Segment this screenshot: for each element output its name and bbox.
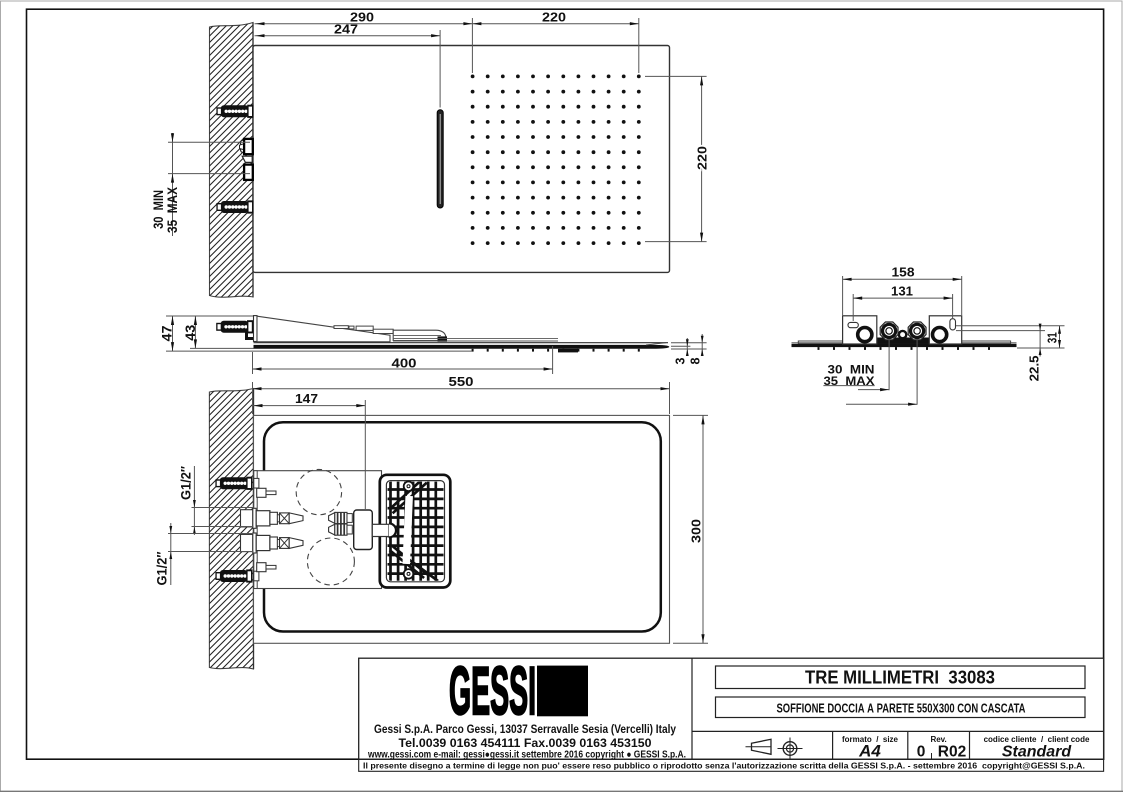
svg-text:300: 300	[689, 519, 704, 543]
svg-text:550: 550	[449, 374, 474, 389]
svg-text:220: 220	[542, 10, 566, 25]
svg-text:220: 220	[694, 146, 709, 170]
svg-text:Gessi S.p.A. Parco Gessi, 1303: Gessi S.p.A. Parco Gessi, 13037 Serraval…	[374, 722, 676, 736]
svg-text:Tel.0039 0163 454111 Fax.0039: Tel.0039 0163 454111 Fax.0039 0163 45315…	[399, 736, 652, 750]
svg-text:TRE MILLIMETRI 33083: TRE MILLIMETRI 33083	[805, 667, 995, 688]
svg-text:35 MAX: 35 MAX	[165, 187, 180, 233]
svg-text:GESSI: GESSI	[449, 653, 536, 729]
svg-text:G1/2″: G1/2″	[179, 465, 194, 500]
svg-text:R02: R02	[938, 744, 966, 761]
svg-text:Il presente disegno a termine: Il presente disegno a termine di legge n…	[363, 762, 1085, 771]
svg-text:22.5: 22.5	[1027, 355, 1042, 381]
svg-text:30 MIN: 30 MIN	[828, 364, 875, 376]
svg-text:G1/2″: G1/2″	[155, 551, 170, 586]
svg-text:131: 131	[891, 283, 913, 298]
svg-text:43: 43	[182, 325, 198, 341]
svg-text:247: 247	[334, 22, 358, 37]
svg-text:400: 400	[392, 355, 417, 370]
svg-text:A4: A4	[858, 742, 881, 761]
svg-text:3: 3	[674, 357, 688, 364]
svg-text:Standard: Standard	[1002, 744, 1073, 761]
svg-text:31: 31	[1046, 332, 1060, 343]
svg-text:0: 0	[917, 744, 926, 761]
svg-text:SOFFIONE DOCCIA A PARETE 550X3: SOFFIONE DOCCIA A PARETE 550X300 CON CAS…	[777, 702, 1026, 716]
svg-text:158: 158	[892, 265, 915, 280]
svg-text:8: 8	[689, 357, 703, 364]
svg-text:147: 147	[295, 391, 318, 406]
svg-text:30 MIN: 30 MIN	[151, 190, 166, 229]
svg-text:35 MAX: 35 MAX	[824, 376, 875, 388]
svg-text:47: 47	[159, 325, 175, 341]
